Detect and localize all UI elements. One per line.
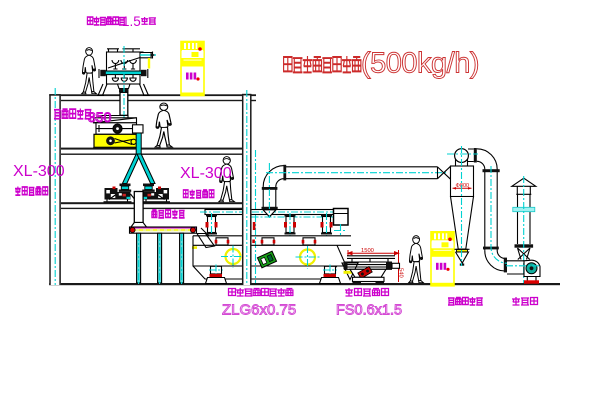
svg-text:ZLG6x0.75: ZLG6x0.75 — [222, 302, 296, 319]
svg-text:XL-300: XL-300 — [180, 165, 232, 182]
svg-text:XL-300: XL-300 — [13, 163, 65, 180]
svg-text:1500: 1500 — [361, 248, 374, 254]
svg-text:350: 350 — [88, 109, 112, 125]
svg-text:(500kg/h): (500kg/h) — [361, 48, 479, 80]
svg-text:540: 540 — [398, 268, 404, 278]
svg-text:1.5: 1.5 — [122, 14, 141, 29]
svg-text:FS0.6x1.5: FS0.6x1.5 — [336, 303, 402, 319]
svg-text:Φ800: Φ800 — [456, 183, 470, 189]
